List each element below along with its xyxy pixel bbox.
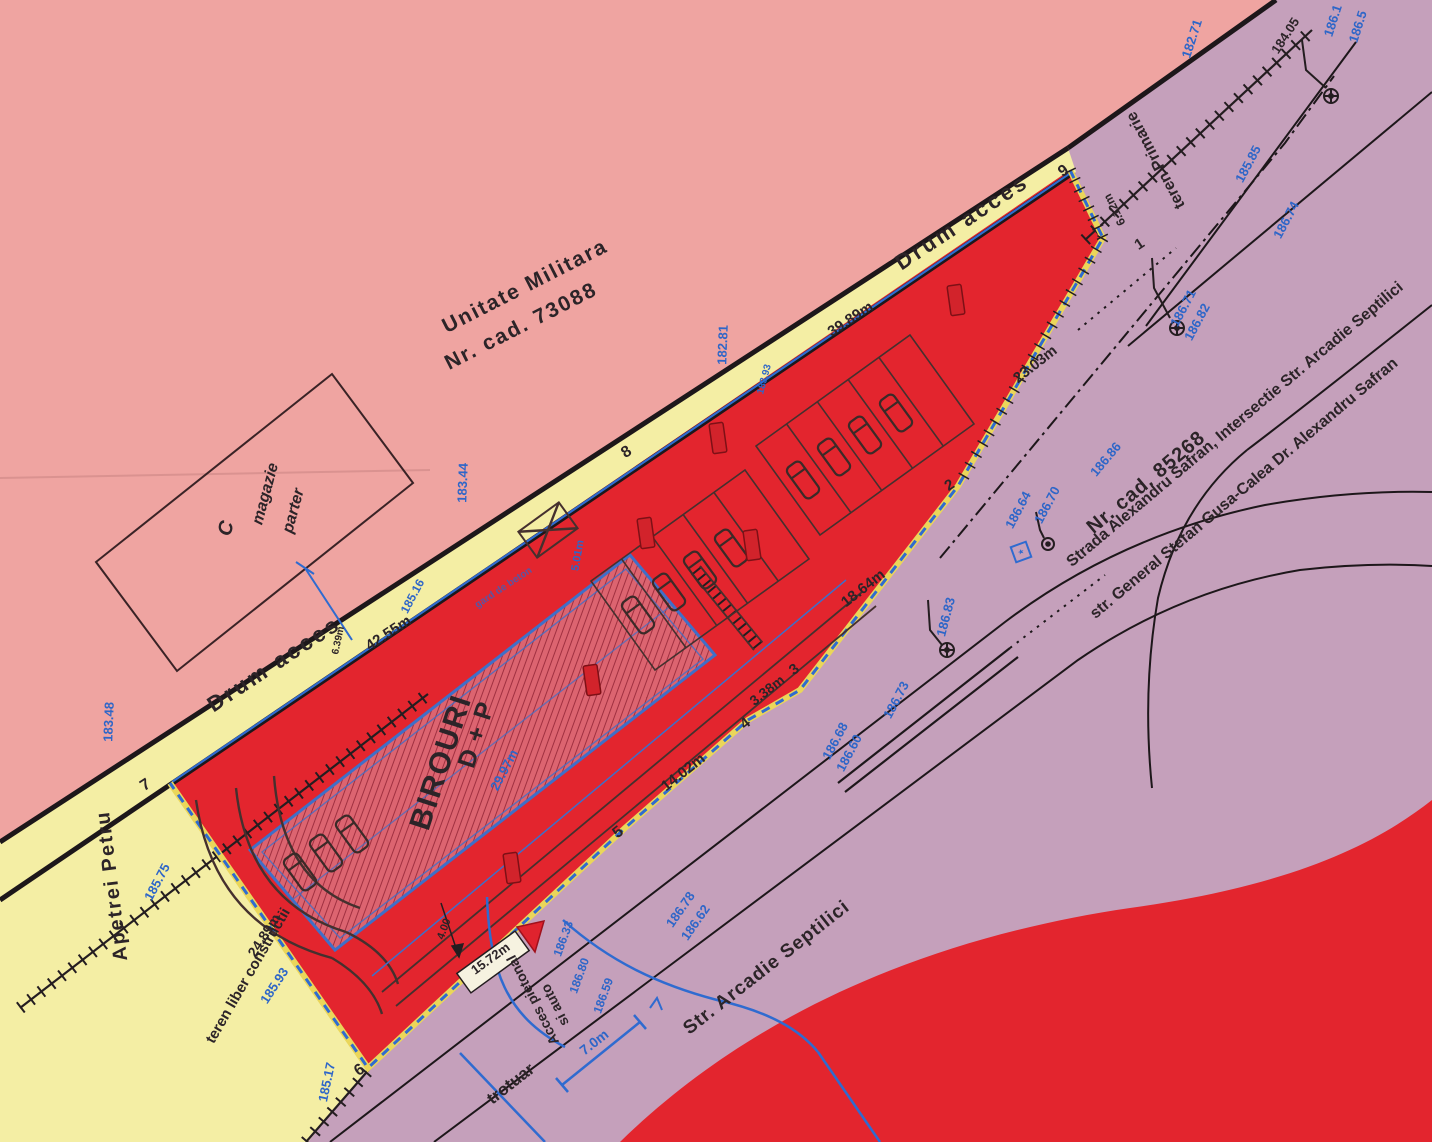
elev-182-81: 182.81	[714, 325, 730, 365]
elev-183-48: 183.48	[100, 702, 116, 742]
site-plan-page: Unitate MilitaraNr. cad. 73088Cmagaziepa…	[0, 0, 1432, 1142]
elev-183-44: 183.44	[454, 462, 470, 503]
site-plan-map: Unitate MilitaraNr. cad. 73088Cmagaziepa…	[0, 0, 1432, 1142]
zone-layer	[0, 0, 1432, 1142]
